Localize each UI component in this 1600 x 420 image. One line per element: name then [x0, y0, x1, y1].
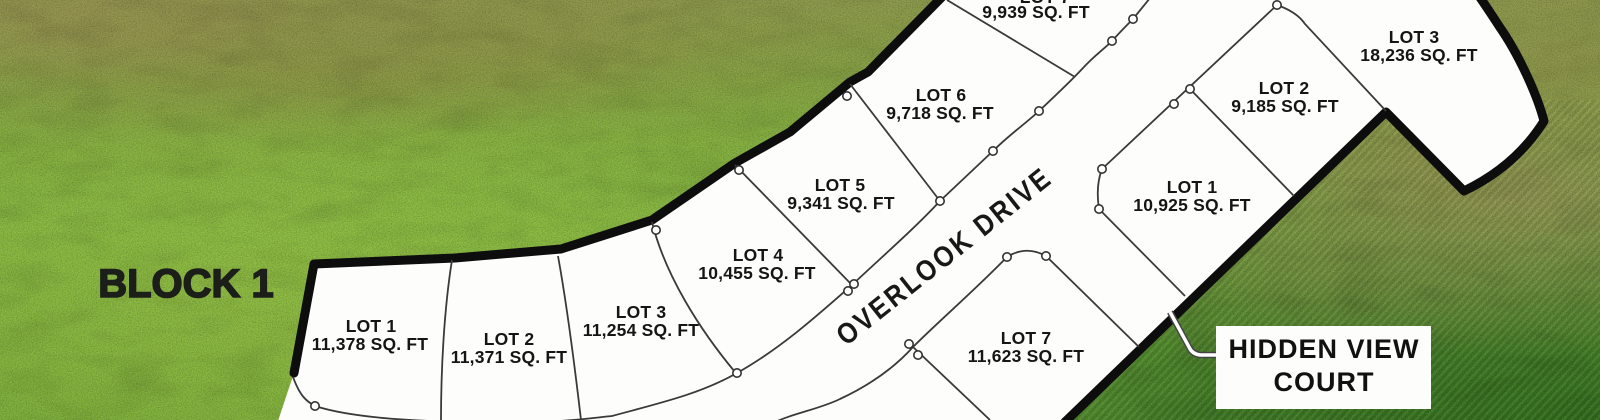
- svg-text:LOT 3: LOT 3: [616, 302, 667, 322]
- svg-text:9,341 SQ. FT: 9,341 SQ. FT: [787, 193, 895, 213]
- svg-text:LOT 1: LOT 1: [346, 316, 397, 336]
- svg-text:LOT 7: LOT 7: [1001, 328, 1052, 348]
- svg-text:9,185 SQ. FT: 9,185 SQ. FT: [1231, 96, 1339, 116]
- svg-text:LOT 2: LOT 2: [1259, 78, 1310, 98]
- svg-text:LOT 2: LOT 2: [484, 329, 535, 349]
- svg-text:11,623 SQ. FT: 11,623 SQ. FT: [968, 346, 1085, 366]
- svg-text:10,455 SQ. FT: 10,455 SQ. FT: [698, 263, 815, 283]
- svg-text:LOT 6: LOT 6: [916, 85, 967, 105]
- svg-text:BLOCK 1: BLOCK 1: [98, 262, 274, 306]
- svg-text:LOT 3: LOT 3: [1389, 27, 1440, 47]
- svg-text:11,371 SQ. FT: 11,371 SQ. FT: [451, 347, 568, 367]
- svg-text:10,925 SQ. FT: 10,925 SQ. FT: [1133, 195, 1250, 215]
- svg-text:COURT: COURT: [1274, 367, 1375, 397]
- svg-text:11,378 SQ. FT: 11,378 SQ. FT: [312, 334, 429, 354]
- svg-text:9,718 SQ. FT: 9,718 SQ. FT: [886, 103, 994, 123]
- svg-text:18,236 SQ. FT: 18,236 SQ. FT: [1360, 45, 1477, 65]
- svg-text:LOT 4: LOT 4: [733, 245, 784, 265]
- svg-text:LOT 5: LOT 5: [815, 175, 866, 195]
- svg-text:HIDDEN VIEW: HIDDEN VIEW: [1228, 334, 1419, 364]
- svg-text:11,254 SQ. FT: 11,254 SQ. FT: [583, 320, 700, 340]
- svg-text:9,939 SQ. FT: 9,939 SQ. FT: [982, 2, 1090, 22]
- svg-text:LOT 1: LOT 1: [1167, 177, 1218, 197]
